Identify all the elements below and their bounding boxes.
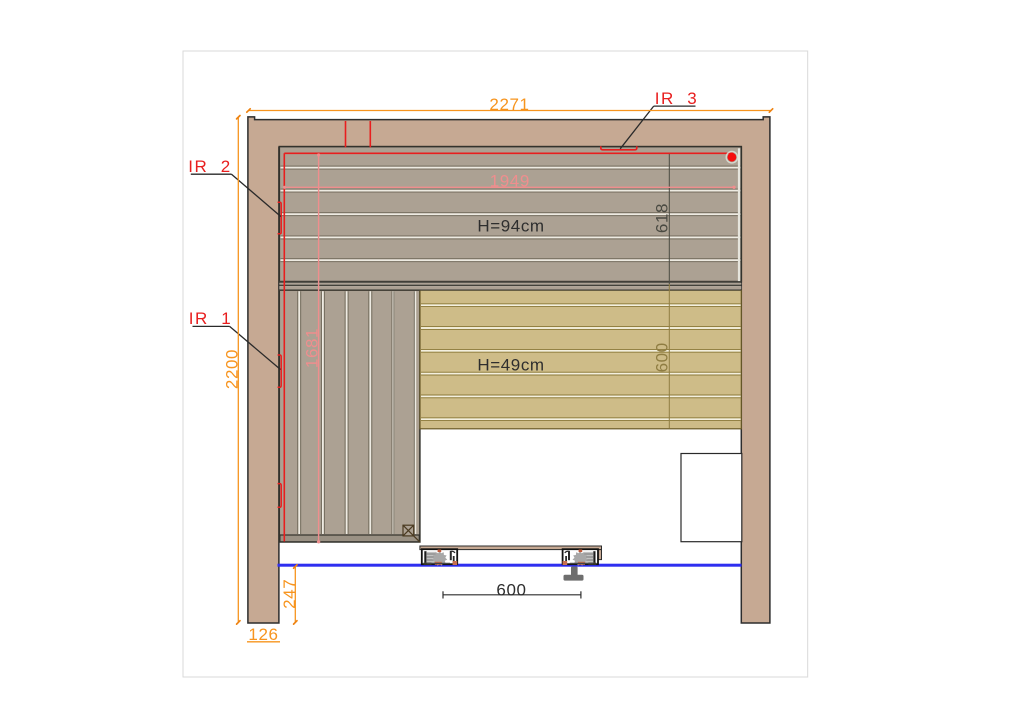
svg-text:247: 247 — [280, 579, 299, 609]
svg-text:618: 618 — [653, 203, 672, 233]
svg-text:IR 3: IR 3 — [655, 89, 698, 108]
svg-text:2271: 2271 — [489, 95, 529, 114]
svg-text:H=49cm: H=49cm — [477, 356, 544, 375]
svg-text:H=94cm: H=94cm — [477, 216, 544, 235]
svg-text:1681: 1681 — [303, 328, 322, 368]
svg-text:600: 600 — [653, 342, 672, 372]
svg-text:IR 2: IR 2 — [188, 157, 231, 176]
svg-text:600: 600 — [496, 581, 526, 600]
svg-text:IR 1: IR 1 — [189, 309, 232, 328]
svg-text:2200: 2200 — [223, 349, 242, 389]
svg-text:1949: 1949 — [490, 172, 530, 191]
svg-text:126: 126 — [248, 625, 278, 644]
